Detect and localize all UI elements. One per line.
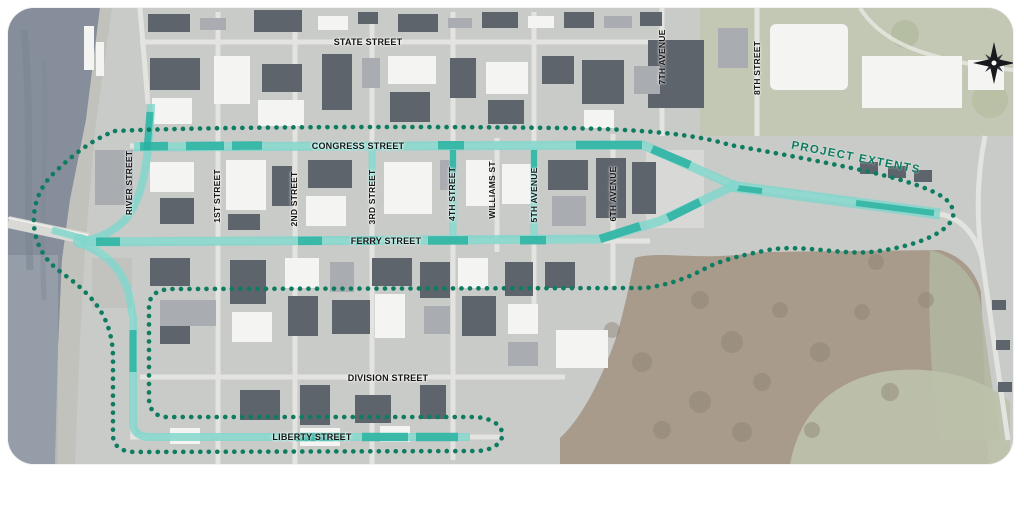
campus-area [700,8,1013,136]
merge-highlight [727,180,739,192]
street-label-ferry: FERRY STREET [351,236,421,246]
street-label-congress: CONGRESS STREET [312,141,405,151]
street-label-liberty: LIBERTY STREET [272,432,351,442]
street-label-division: DIVISION STREET [348,373,429,383]
street-label-7th: 7TH AVENUE [657,30,667,85]
project-extents-map [8,8,1013,464]
street-label-river: RIVER STREET [124,151,134,215]
street-label-williams: WILLIAMS ST [487,161,497,218]
street-label-3rd: 3RD STREET [367,170,377,225]
screenshot-root: { "map": { "street_labels": { "state": "… [0,0,1024,512]
compass-rose-icon [971,40,1013,86]
aerial-basemap [8,8,1013,464]
street-label-state: STATE STREET [334,37,403,47]
street-label-1st: 1ST STREET [212,169,222,222]
street-label-6th: 6TH AVENUE [608,167,618,222]
street-label-4th: 4TH STREET [447,167,457,221]
street-label-2nd: 2ND STREET [289,172,299,227]
street-label-5th: 5TH AVENUE [529,168,539,223]
street-label-8th: 8TH STREET [752,41,762,95]
junction-highlight [73,234,87,248]
